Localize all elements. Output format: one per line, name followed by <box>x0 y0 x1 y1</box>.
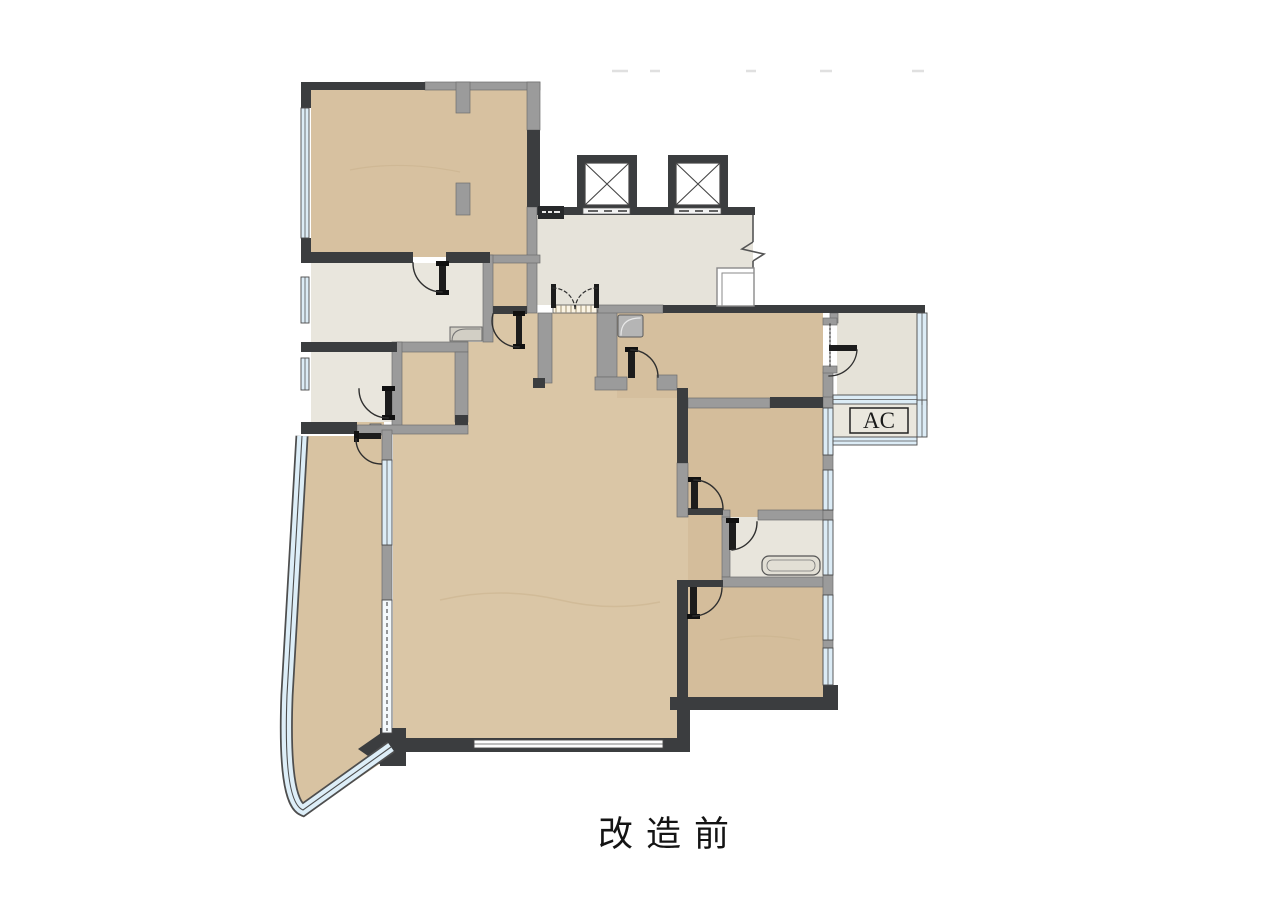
wall <box>677 388 688 463</box>
wall <box>527 82 540 130</box>
wall <box>657 375 677 390</box>
wall <box>301 82 425 90</box>
wall <box>301 238 311 252</box>
bathroom2-floor <box>311 352 392 422</box>
wall <box>357 425 468 434</box>
wall <box>595 377 627 390</box>
door-leaf <box>628 349 635 378</box>
wall <box>527 130 540 207</box>
wall <box>538 313 552 383</box>
wall <box>487 255 540 263</box>
door-cap <box>382 386 395 391</box>
door-leaf <box>439 263 446 293</box>
wall <box>677 697 690 752</box>
door-leaf <box>356 433 381 439</box>
wall <box>301 252 413 263</box>
wall <box>770 397 823 408</box>
balcony-door-frame <box>823 366 837 373</box>
door-leaf <box>729 520 736 550</box>
wall <box>455 352 468 422</box>
door-leaf <box>385 388 392 418</box>
right-balcony-floor <box>837 313 917 397</box>
wall <box>301 90 311 108</box>
wall <box>397 342 468 352</box>
wall <box>677 463 688 517</box>
ac-platform-label: AC <box>850 408 908 433</box>
wall <box>446 252 490 263</box>
door-cap <box>513 311 525 316</box>
floor-plan-page: AC 改造前 <box>0 0 1280 905</box>
wall <box>722 517 730 577</box>
wall <box>823 685 838 701</box>
wall <box>301 342 397 352</box>
wall <box>670 697 838 710</box>
door-sill <box>688 508 723 515</box>
door-cap <box>436 261 449 266</box>
wall <box>677 580 688 697</box>
wall <box>425 82 540 90</box>
wall <box>722 577 823 587</box>
door-sill <box>688 580 723 587</box>
elevators <box>577 155 728 214</box>
wall <box>598 305 663 313</box>
plan-title: 改造前 <box>575 806 765 857</box>
elevator-1 <box>577 155 637 214</box>
wall <box>533 378 545 388</box>
wall <box>758 510 823 520</box>
door-leaf <box>691 479 698 509</box>
wall <box>663 305 925 313</box>
elevator-2 <box>668 155 728 214</box>
wall <box>688 398 770 408</box>
door-leaf <box>829 345 857 351</box>
wall <box>823 575 833 595</box>
wall <box>597 310 617 377</box>
neighbor-door-outline <box>717 268 754 306</box>
wall-sill <box>382 545 392 600</box>
wall <box>823 455 833 470</box>
wall <box>382 430 392 462</box>
door-leaf <box>516 313 522 348</box>
ac-label-text: AC <box>863 408 895 433</box>
door-cap <box>726 518 739 523</box>
wall <box>823 397 833 408</box>
wall-stub <box>456 82 470 113</box>
wall-stub <box>456 183 470 215</box>
door-leaf <box>690 587 697 617</box>
floor-plan-canvas: AC <box>0 0 1280 905</box>
wall <box>823 640 833 648</box>
wall <box>483 255 493 342</box>
wall <box>301 422 357 434</box>
wall <box>455 415 468 425</box>
bathtub <box>762 556 820 575</box>
